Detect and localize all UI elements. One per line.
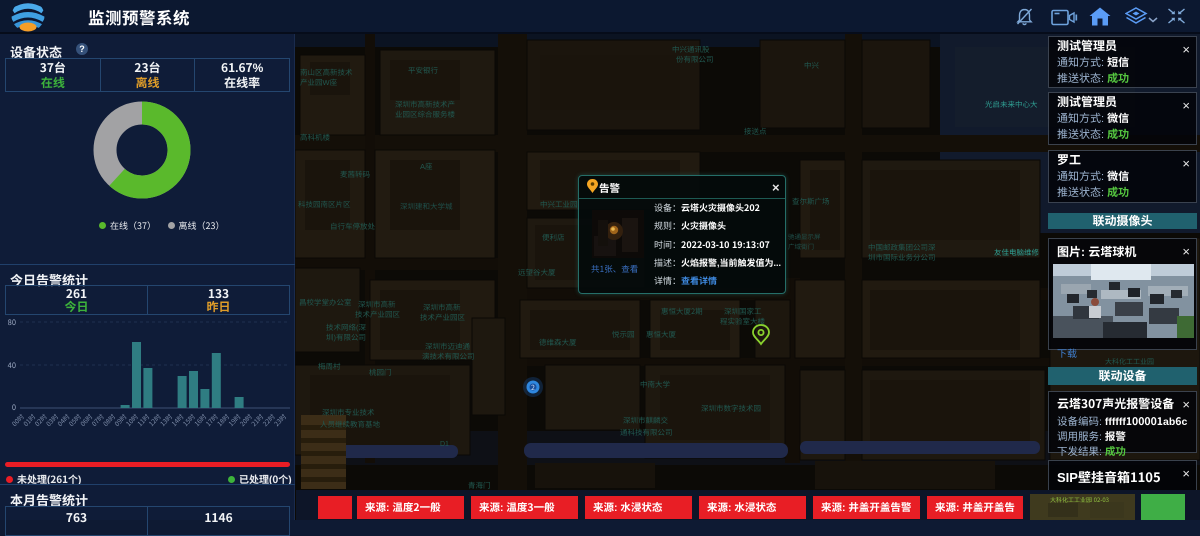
- svg-text:惠恒大厦: 惠恒大厦: [646, 329, 676, 340]
- svg-text:光启未来中心大: 光启未来中心大: [985, 99, 1038, 110]
- svg-text:演技术有限公司: 演技术有限公司: [422, 351, 475, 362]
- svg-text:人员继续教育基地: 人员继续教育基地: [320, 419, 380, 430]
- svg-text:2: 2: [531, 383, 535, 393]
- svg-text:桃园门: 桃园门: [369, 367, 392, 378]
- svg-text:查尔斯广场: 查尔斯广场: [792, 196, 830, 207]
- svg-text:23时: 23时: [271, 411, 288, 428]
- svg-text:通科技有限公司: 通科技有限公司: [620, 427, 673, 438]
- svg-text:便利店: 便利店: [542, 232, 565, 243]
- svg-text:昌校学堂办公室: 昌校学堂办公室: [299, 297, 352, 308]
- svg-text:技术产业园区: 技术产业园区: [355, 309, 400, 320]
- svg-text:D1: D1: [440, 439, 449, 449]
- svg-text:驰通显示屏: 驰通显示屏: [788, 231, 821, 241]
- svg-text:份有限公司: 份有限公司: [676, 54, 714, 65]
- svg-text:高科机楼: 高科机楼: [300, 132, 330, 143]
- svg-text:0: 0: [12, 402, 16, 413]
- svg-text:圳市国际业务分公司: 圳市国际业务分公司: [868, 252, 936, 263]
- svg-text:科技园南区片区: 科技园南区片区: [298, 199, 351, 210]
- svg-text:悦示园: 悦示园: [612, 329, 635, 340]
- svg-text:惠恒大厦2期: 惠恒大厦2期: [661, 306, 703, 317]
- svg-text:40: 40: [8, 360, 16, 371]
- svg-text:麦茜转码: 麦茜转码: [340, 169, 370, 180]
- svg-text:深圳市数字技术园: 深圳市数字技术园: [701, 403, 761, 414]
- svg-text:业园区综合服务楼: 业园区综合服务楼: [395, 109, 455, 120]
- svg-text:梅周村: 梅周村: [318, 361, 341, 372]
- svg-text:深圳市专业技术: 深圳市专业技术: [322, 407, 375, 418]
- svg-text:圳)有限公司: 圳)有限公司: [326, 332, 366, 343]
- svg-text:80: 80: [8, 317, 16, 328]
- svg-text:远望谷大厦: 远望谷大厦: [518, 267, 556, 278]
- svg-text:友佳电脑维修: 友佳电脑维修: [994, 247, 1039, 258]
- svg-text:技术产业园区: 技术产业园区: [420, 312, 465, 323]
- svg-text:A座: A座: [420, 161, 433, 172]
- svg-text:自行车停放处: 自行车停放处: [330, 221, 375, 232]
- svg-text:德维森大厦: 德维森大厦: [539, 337, 577, 348]
- svg-text:广域街门: 广域街门: [788, 241, 814, 251]
- svg-text:中兴工业园: 中兴工业园: [540, 199, 578, 210]
- svg-text:接送点: 接送点: [744, 126, 767, 137]
- svg-text:产业园W座: 产业园W座: [300, 77, 338, 88]
- svg-text:平安银行: 平安银行: [408, 65, 438, 76]
- svg-text:中兴: 中兴: [804, 60, 819, 71]
- svg-text:深圳市麒麟交: 深圳市麒麟交: [623, 415, 668, 426]
- svg-text:深圳建和大学城: 深圳建和大学城: [400, 201, 453, 212]
- svg-text:中南大学: 中南大学: [640, 379, 670, 390]
